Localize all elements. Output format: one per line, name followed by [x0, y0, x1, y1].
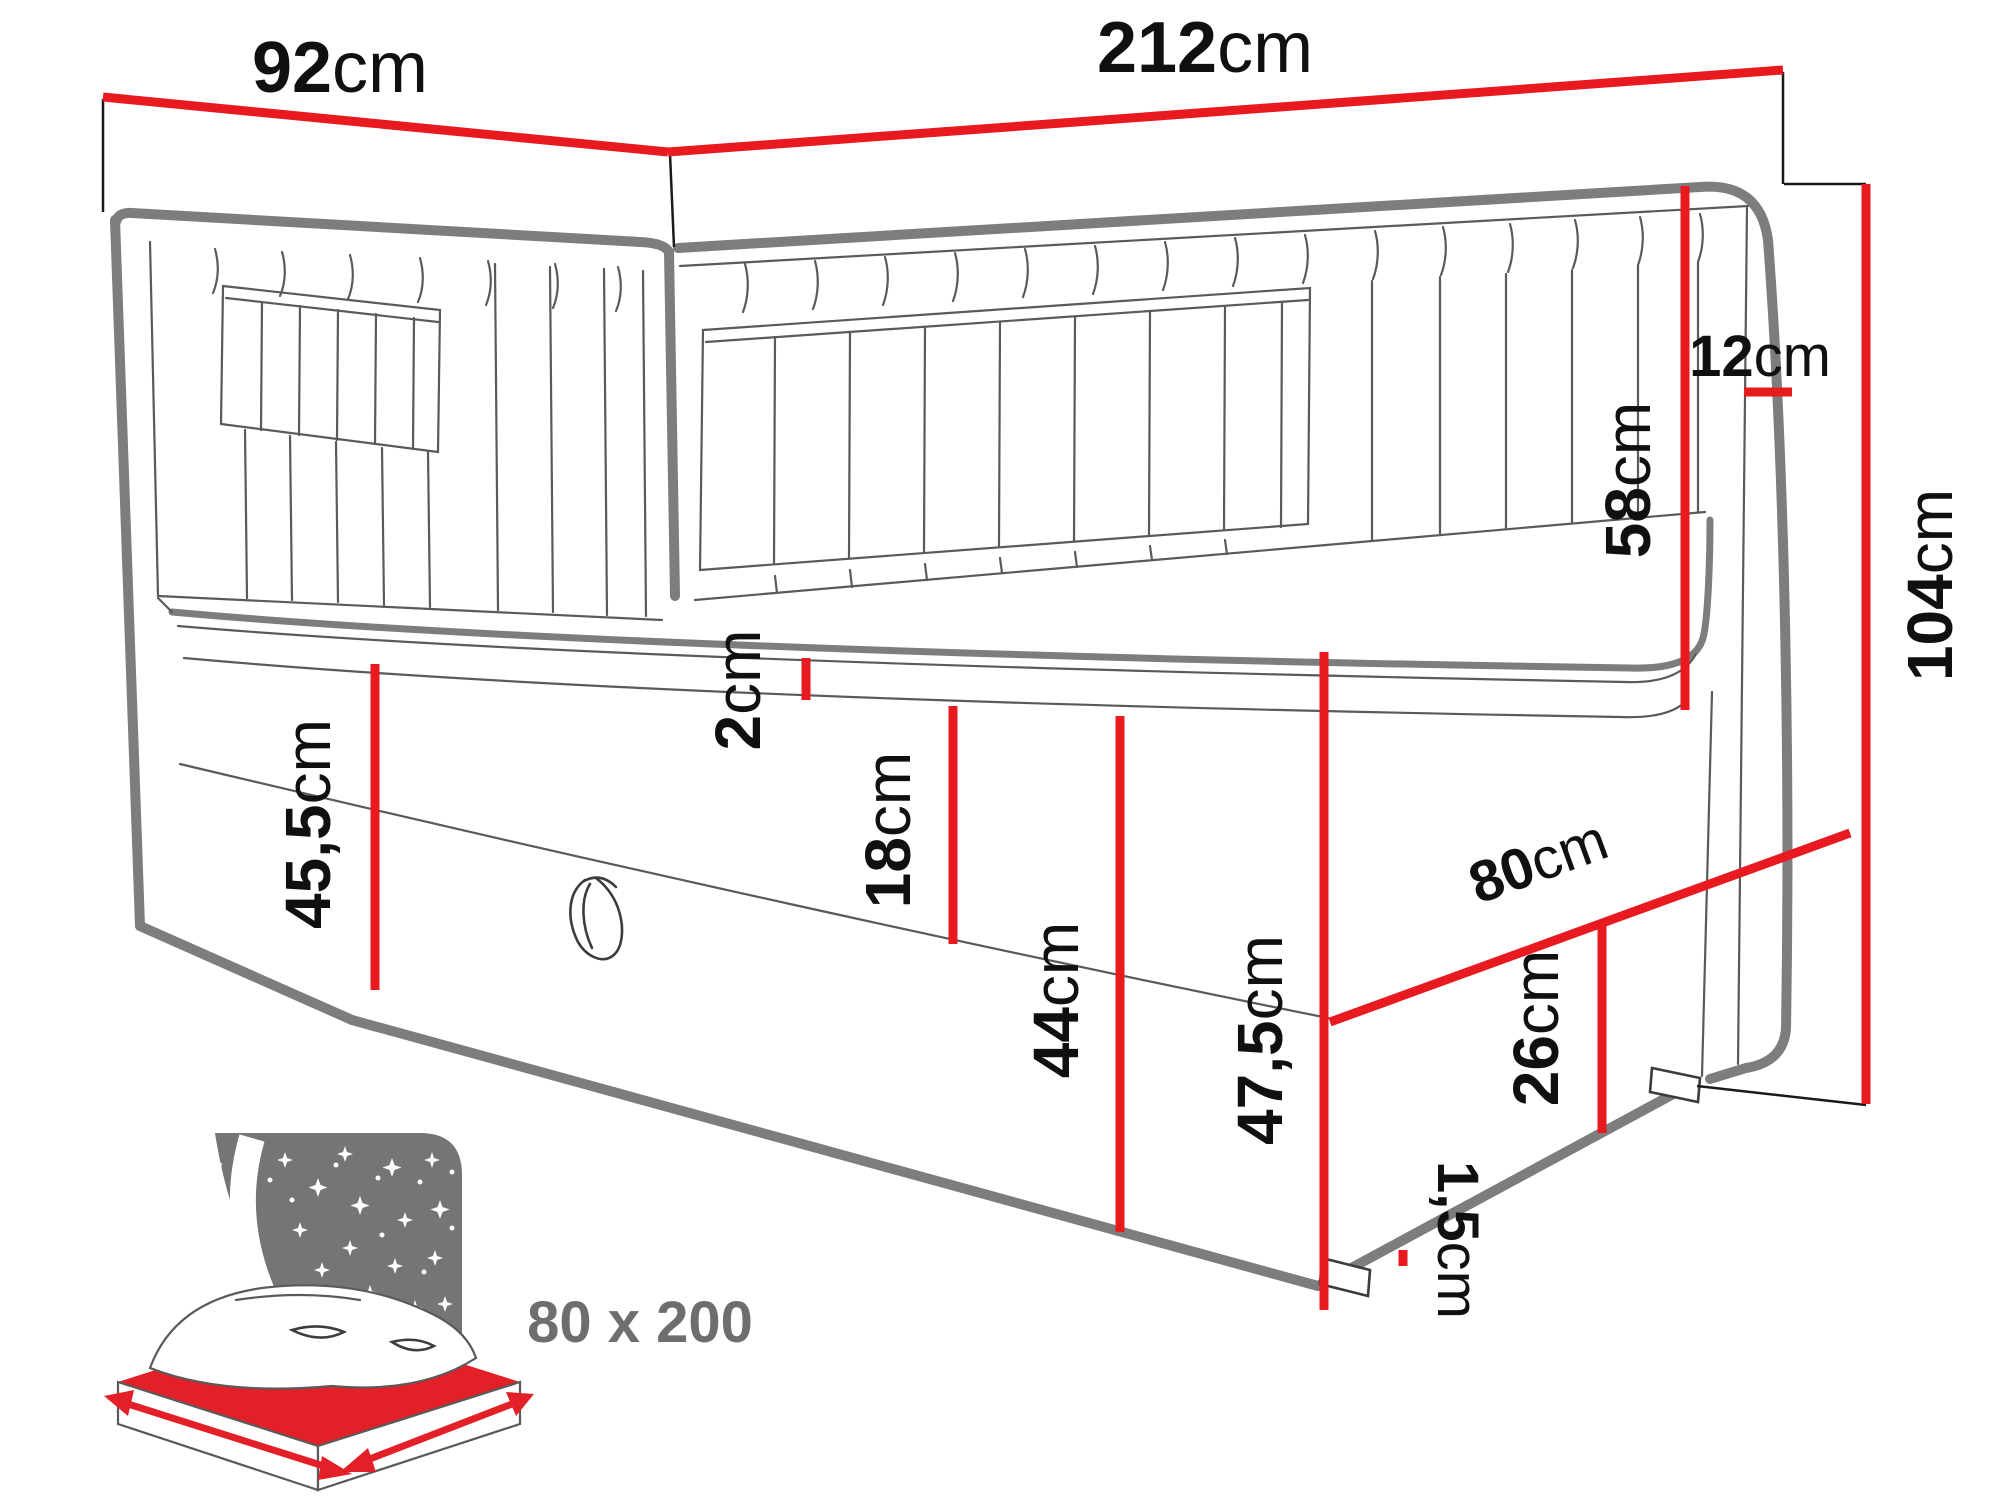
dimension-labels: 92cm 212cm 12cm 104cm 58cm 2cm 18cm 44cm… — [252, 8, 1966, 1319]
label-foot-width: 80cm — [1461, 807, 1617, 917]
left-headboard-panel — [221, 286, 440, 607]
back-headboard-panel — [700, 288, 1310, 593]
label-back-width: 212cm — [1097, 8, 1313, 88]
left-headboard-outer-edge — [115, 220, 140, 926]
mattress-base-seam — [180, 764, 1328, 1018]
diagram-canvas: 92cm 212cm 12cm 104cm 58cm 2cm 18cm 44cm… — [0, 0, 2000, 1500]
label-foot-panel: 26cm — [1500, 950, 1572, 1107]
label-leg-height: 1,5cm — [1425, 1161, 1490, 1319]
left-headboard — [115, 213, 675, 926]
label-total-height: 104cm — [1894, 489, 1966, 681]
label-side-width: 92cm — [252, 28, 428, 108]
label-base: 44cm — [1020, 922, 1092, 1079]
dimension-lines — [103, 70, 1866, 1310]
label-headboard-height: 58cm — [1592, 402, 1664, 559]
icon-bed — [104, 1285, 534, 1490]
mattress-front-edge — [172, 520, 1710, 668]
label-left-side-height: 45,5cm — [272, 719, 344, 929]
storage-handle — [570, 878, 622, 960]
bed-dimension-drawing: 92cm 212cm 12cm 104cm 58cm 2cm 18cm 44cm… — [0, 0, 2000, 1500]
mattress-size-icon: 80 x 200 — [104, 1133, 753, 1490]
left-headboard-top-edge — [116, 213, 675, 596]
label-topper: 2cm — [702, 630, 774, 751]
back-headboard-tufting — [680, 206, 1748, 600]
sleeping-area-label: 80 x 200 — [527, 1290, 753, 1355]
label-right-side-height: 47,5cm — [1224, 935, 1296, 1145]
label-headboard-thickness: 12cm — [1689, 324, 1831, 389]
label-mattress: 18cm — [852, 752, 924, 909]
mattress — [158, 520, 1710, 1018]
